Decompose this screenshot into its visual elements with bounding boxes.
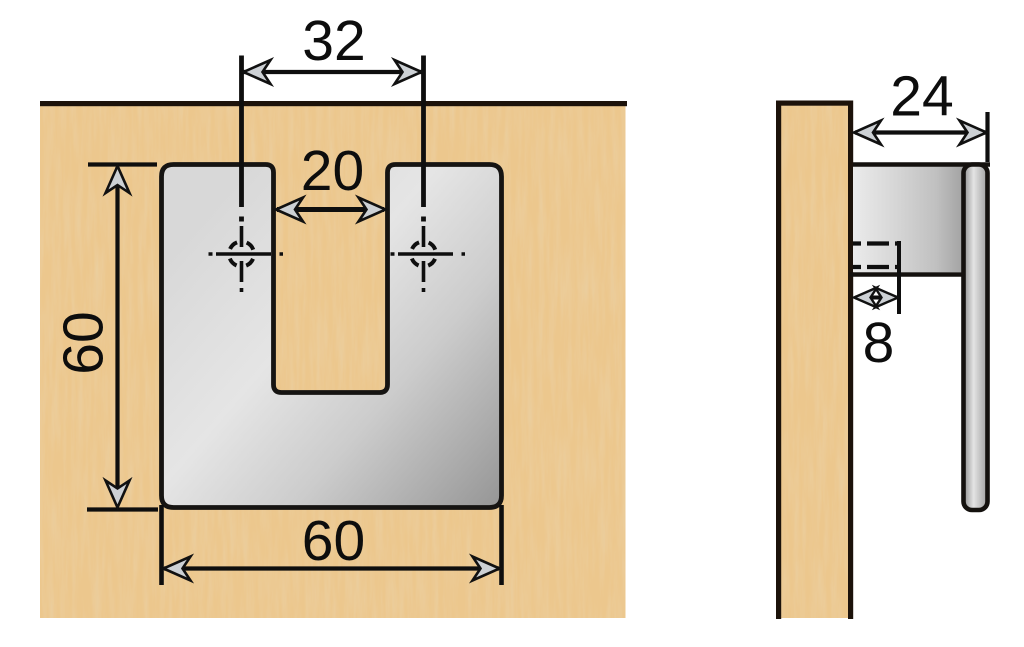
svg-text:20: 20 [301,139,364,203]
svg-text:8: 8 [863,311,895,375]
svg-text:24: 24 [890,65,953,129]
svg-text:60: 60 [52,311,116,374]
svg-text:32: 32 [302,9,365,73]
svg-text:60: 60 [302,509,365,573]
